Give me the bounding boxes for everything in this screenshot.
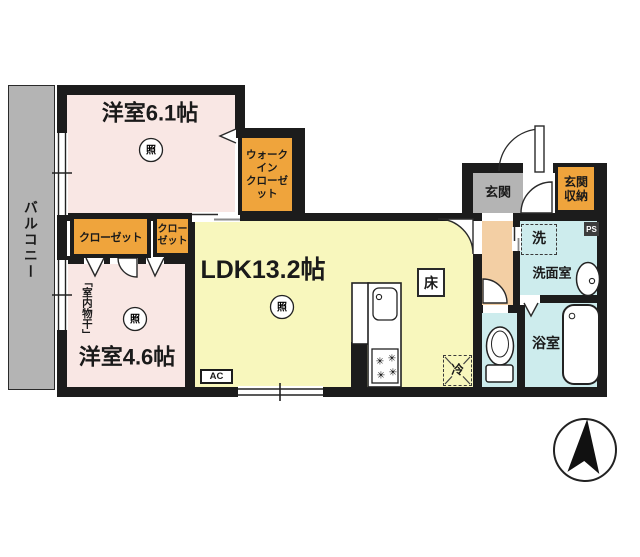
closet-2: クロー ゼット: [153, 215, 192, 257]
walk-in-closet-label: ウォークイン クローゼット: [242, 149, 292, 201]
wall-segment: [513, 251, 520, 305]
genkan-label: 玄関: [485, 186, 511, 201]
wall-segment: [513, 213, 607, 221]
ldk-floor: [195, 221, 473, 387]
washer-label: 洗: [532, 231, 546, 247]
closet-1-label: クローゼット: [79, 229, 142, 245]
wall-segment: [296, 128, 305, 218]
wall-segment: [597, 163, 607, 397]
wall-segment: [57, 85, 245, 95]
wall-segment: [57, 387, 238, 397]
indoor-drying-label: 「室内物干」: [80, 277, 92, 340]
ldk-label: LDK13.2帖: [200, 256, 325, 284]
ps-box: PS: [584, 222, 599, 236]
fridge-label: 冷: [451, 363, 464, 377]
genkan-storage-label: 玄関 収納: [564, 175, 588, 203]
floor-hatch-label: 床: [424, 273, 438, 293]
wall-segment: [462, 163, 523, 173]
toilet-floor: [482, 313, 517, 387]
bedroom1-label: 洋室6.1帖: [102, 102, 199, 127]
wall-segment: [540, 295, 597, 303]
wall-segment: [473, 254, 482, 387]
hallway-floor: [482, 221, 513, 305]
door-arc: [521, 182, 552, 213]
balcony-label: バルコニー: [22, 200, 38, 280]
wall-segment: [57, 215, 67, 260]
genkan-storage: 玄関 収納: [555, 164, 597, 213]
bathroom-label: 浴室: [532, 336, 560, 352]
wall-segment: [517, 305, 525, 387]
washroom-label: 洗面室: [532, 267, 571, 282]
ac-box: AC: [200, 369, 233, 384]
bedroom2-label: 洋室4.6帖: [79, 346, 176, 371]
wall-segment: [473, 305, 483, 313]
closet-1: クローゼット: [70, 215, 151, 258]
compass: [552, 417, 618, 483]
wall-segment: [323, 387, 607, 397]
floor-hatch: 床: [417, 268, 445, 297]
kitchen-wall-stub: [351, 342, 367, 387]
floorplan: ✳ ✳ ✳ ✳ 照 照: [0, 0, 640, 557]
closet-2-label: クロー ゼット: [158, 224, 188, 248]
wall-segment: [57, 85, 67, 133]
ps-label: PS: [586, 225, 597, 234]
ac-label: AC: [210, 371, 224, 382]
wall-segment: [513, 221, 520, 227]
walk-in-closet: ウォークイン クローゼット: [238, 134, 296, 215]
